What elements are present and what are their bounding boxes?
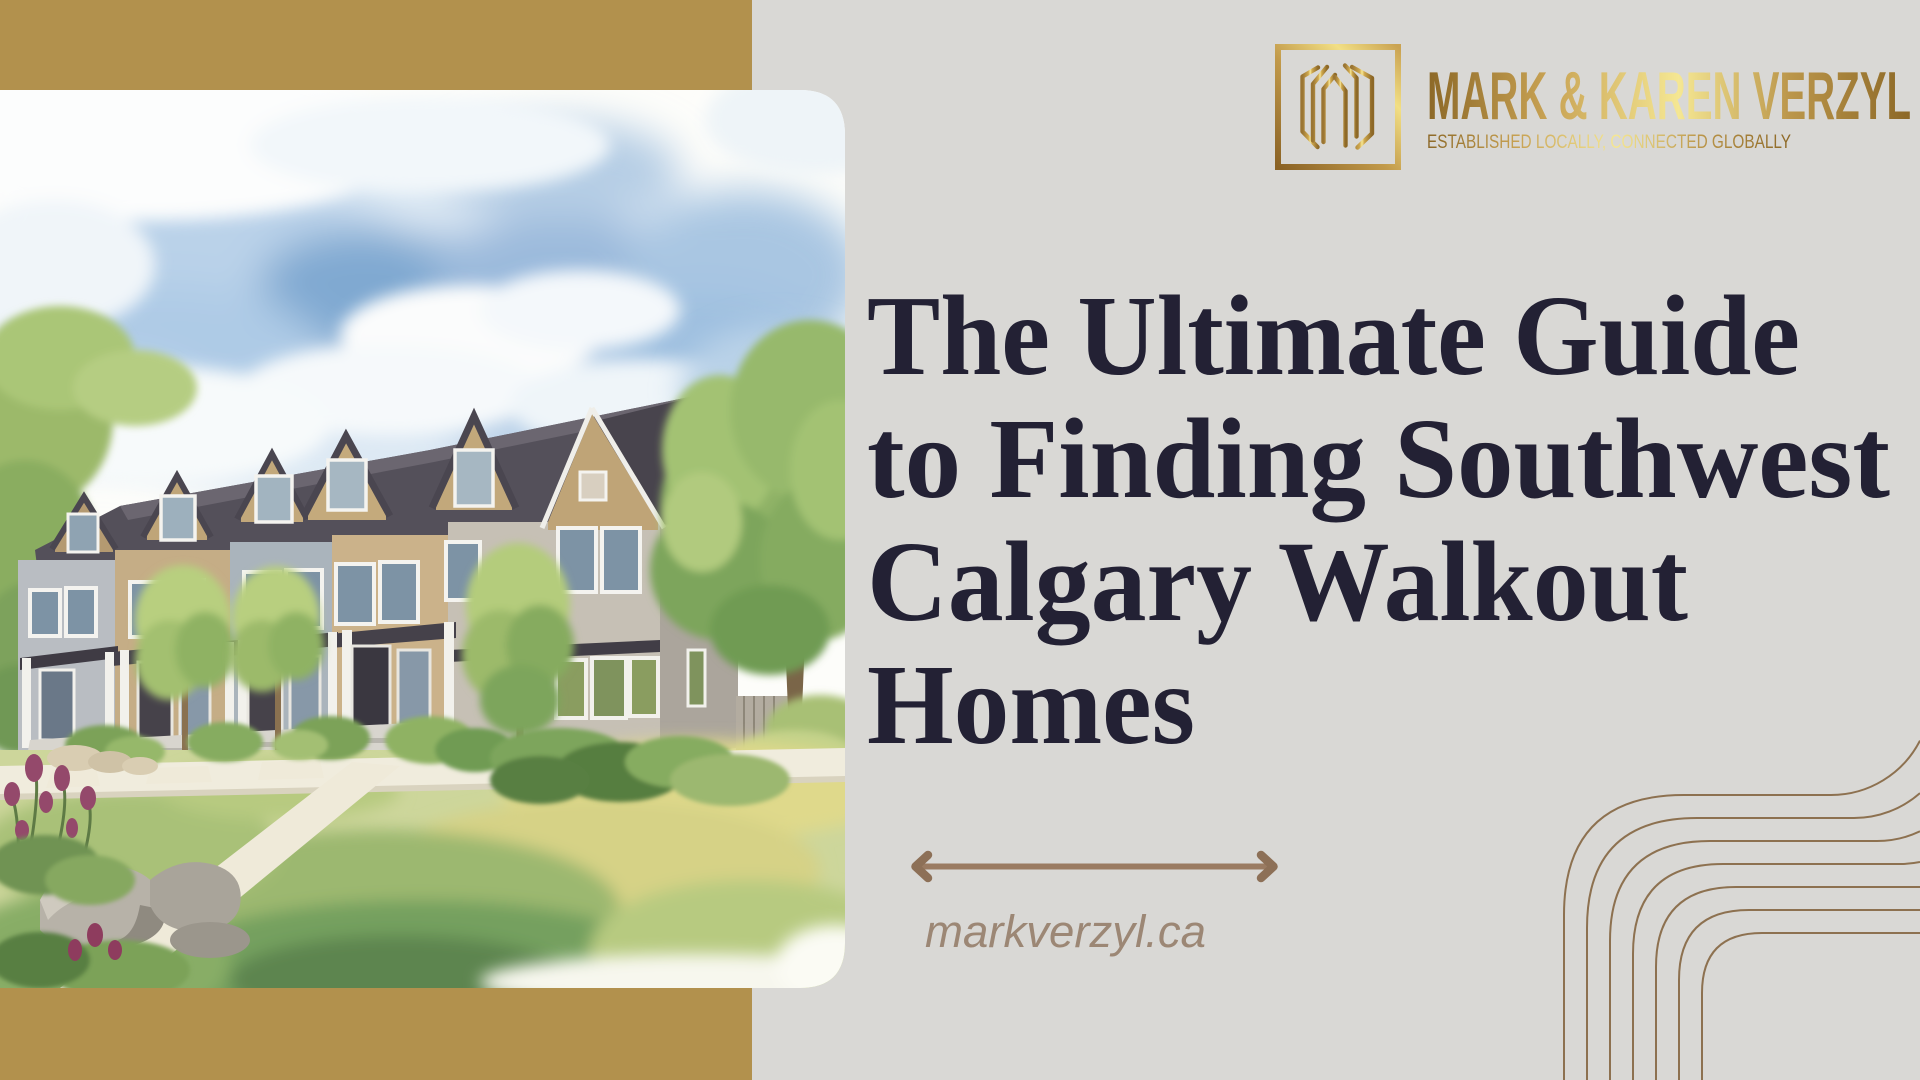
svg-text:Homes: Homes (867, 641, 1195, 768)
svg-text:markverzyl.ca: markverzyl.ca (925, 906, 1206, 957)
svg-text:The Ultimate Guide: The Ultimate Guide (867, 272, 1800, 399)
svg-text:ESTABLISHED LOCALLY, CONNECTED: ESTABLISHED LOCALLY, CONNECTED GLOBALLY (1427, 132, 1791, 153)
svg-text:MARK & KAREN VERZYL: MARK & KAREN VERZYL (1427, 58, 1911, 134)
svg-text:Calgary Walkout: Calgary Walkout (867, 518, 1688, 645)
svg-text:to Finding Southwest: to Finding Southwest (867, 395, 1890, 522)
